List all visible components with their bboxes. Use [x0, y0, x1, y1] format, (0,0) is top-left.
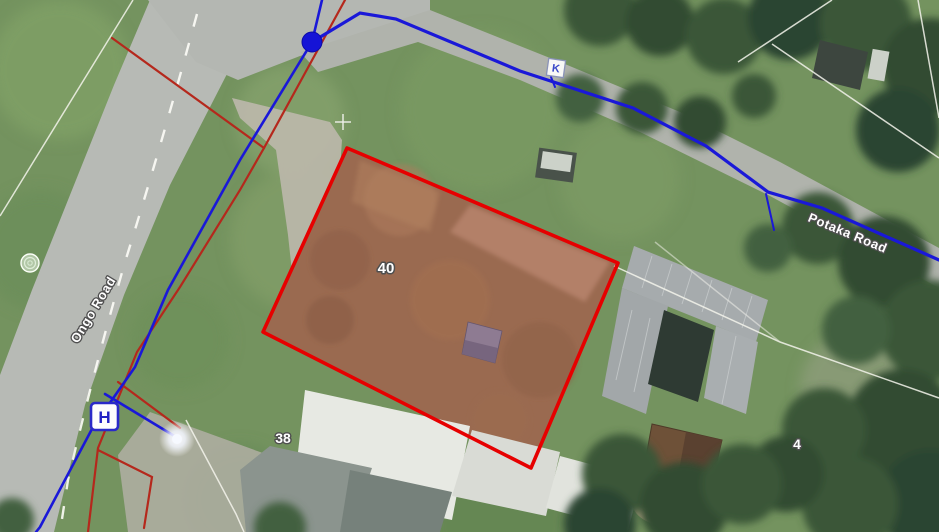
selected-node-glow[interactable]: [159, 421, 195, 457]
hydrant-marker-label: H: [98, 408, 110, 427]
aerial-basemap: [0, 0, 939, 532]
valve-marker-label: K: [551, 62, 561, 75]
parcel-number-40: 40: [378, 260, 395, 277]
valve-marker[interactable]: K: [546, 58, 565, 77]
map-canvas[interactable]: K H 40 38 4 Ongo Road Potaka Road: [0, 0, 939, 532]
hydrant-marker[interactable]: H: [91, 403, 118, 430]
paddock-trailer: [535, 148, 577, 183]
bore-ring-symbol[interactable]: [21, 254, 39, 272]
house-number-38: 38: [275, 430, 291, 446]
house-number-4: 4: [793, 436, 801, 452]
map-viewport[interactable]: K H 40 38 4 Ongo Road Potaka Road: [0, 0, 939, 532]
water-node-dot[interactable]: [302, 32, 322, 52]
